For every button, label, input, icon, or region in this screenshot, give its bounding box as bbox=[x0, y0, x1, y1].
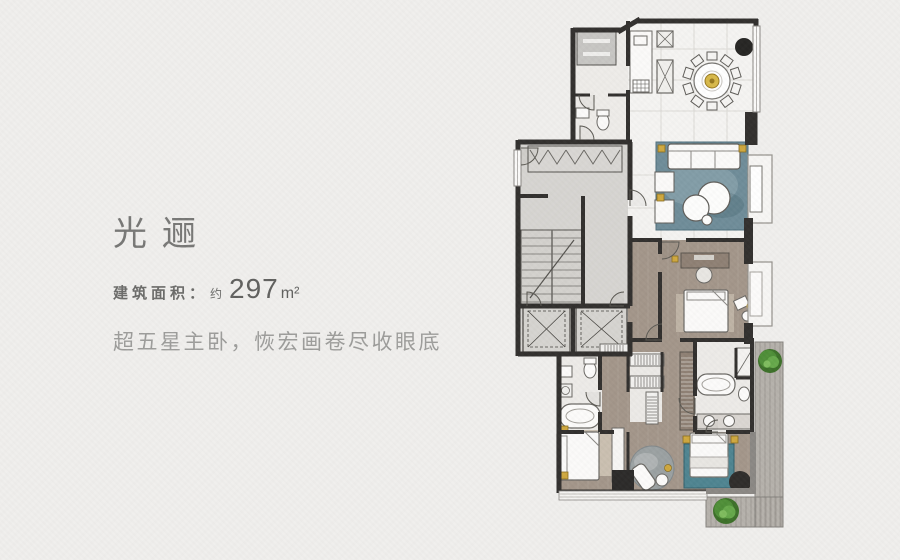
study-lamp bbox=[672, 256, 678, 262]
page: 光逦 建筑面积： 约 297 m² 超五星主卧，恢宏画卷尽收眼底 bbox=[0, 0, 900, 560]
master-gold-1 bbox=[683, 436, 690, 443]
bath2-toilet-tank bbox=[584, 358, 596, 364]
kitchen-appliance bbox=[577, 31, 616, 65]
area-row: 建筑面积： 约 297 m² bbox=[113, 273, 533, 305]
lamp-3 bbox=[657, 194, 664, 201]
plant-terrace-bottom bbox=[713, 498, 739, 524]
wall-chunk-2 bbox=[744, 218, 753, 264]
dining-centerpiece-dot bbox=[710, 79, 715, 84]
wall-chunk-4 bbox=[612, 470, 634, 494]
area-value: 297 bbox=[229, 273, 279, 305]
mbath-tub bbox=[697, 374, 735, 395]
wall-chunk-1 bbox=[745, 112, 754, 145]
area-label: 建筑面积： bbox=[113, 282, 208, 303]
side-table-1 bbox=[655, 172, 674, 192]
bed2 bbox=[684, 290, 728, 332]
kitchen-appliance-slot1 bbox=[583, 39, 610, 43]
plant-terrace-top bbox=[758, 349, 782, 373]
shaft-2 bbox=[657, 60, 673, 93]
living-bay-seat bbox=[750, 166, 762, 212]
window-master-right bbox=[750, 432, 756, 490]
lamp-2 bbox=[739, 145, 746, 152]
structural-column bbox=[735, 38, 753, 56]
wall-chunk-3 bbox=[744, 323, 753, 344]
master-gold-2 bbox=[731, 436, 738, 443]
desk-top-item bbox=[694, 255, 714, 260]
tagline: 超五星主卧，恢宏画卷尽收眼底 bbox=[113, 326, 533, 356]
bed3-gold-2 bbox=[561, 472, 568, 479]
area-approx: 约 bbox=[210, 285, 222, 302]
lamp-1 bbox=[658, 145, 665, 152]
info-panel: 光逦 建筑面积： 约 297 m² 超五星主卧，恢宏画卷尽收眼底 bbox=[113, 206, 533, 356]
bed2-bay-inner bbox=[750, 272, 762, 316]
kitchen-appliance-slot2 bbox=[583, 52, 610, 56]
area-unit: m² bbox=[281, 285, 300, 303]
side-table-2 bbox=[655, 200, 674, 223]
powder-toilet-tank bbox=[597, 110, 609, 116]
sofa bbox=[668, 144, 740, 169]
coffee-table-3 bbox=[702, 215, 712, 225]
window-master-bottom bbox=[706, 488, 756, 494]
plan-title: 光逦 bbox=[113, 206, 533, 255]
mbath-toilet bbox=[739, 387, 750, 401]
powder-sink bbox=[576, 108, 589, 118]
shaft-1 bbox=[657, 31, 673, 47]
mbath-sink2 bbox=[724, 416, 735, 427]
window-bottom bbox=[559, 491, 707, 500]
sitting-gold-dot bbox=[665, 465, 672, 472]
desk-chair bbox=[696, 267, 712, 283]
master-bed-blanket bbox=[690, 457, 728, 468]
sitting-side-table bbox=[656, 474, 668, 486]
